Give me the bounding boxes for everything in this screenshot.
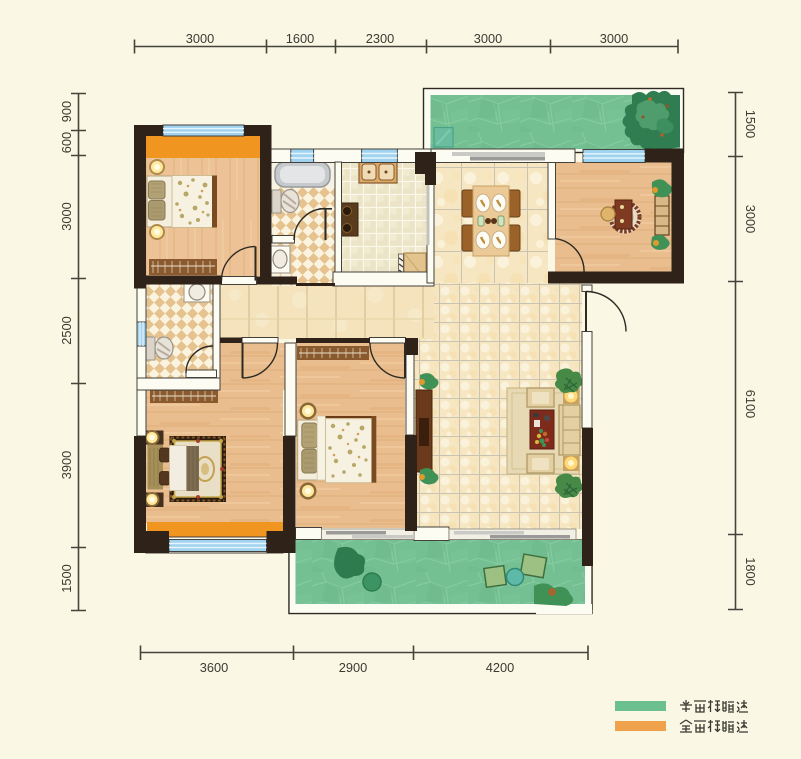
svg-text:2500: 2500 [59, 316, 74, 344]
svg-text:1800: 1800 [743, 557, 758, 585]
svg-text:4200: 4200 [486, 660, 514, 675]
svg-text:3000: 3000 [186, 31, 214, 46]
svg-text:3000: 3000 [59, 202, 74, 230]
svg-text:2300: 2300 [366, 31, 394, 46]
svg-text:600: 600 [59, 132, 74, 153]
svg-text:2900: 2900 [339, 660, 367, 675]
svg-text:3000: 3000 [600, 31, 628, 46]
svg-text:1600: 1600 [286, 31, 314, 46]
svg-text:6100: 6100 [743, 390, 758, 418]
svg-text:3000: 3000 [474, 31, 502, 46]
svg-text:3000: 3000 [743, 205, 758, 233]
svg-text:1500: 1500 [59, 564, 74, 592]
svg-text:900: 900 [59, 101, 74, 122]
svg-text:3600: 3600 [200, 660, 228, 675]
svg-text:1500: 1500 [743, 110, 758, 138]
svg-text:3900: 3900 [59, 451, 74, 479]
